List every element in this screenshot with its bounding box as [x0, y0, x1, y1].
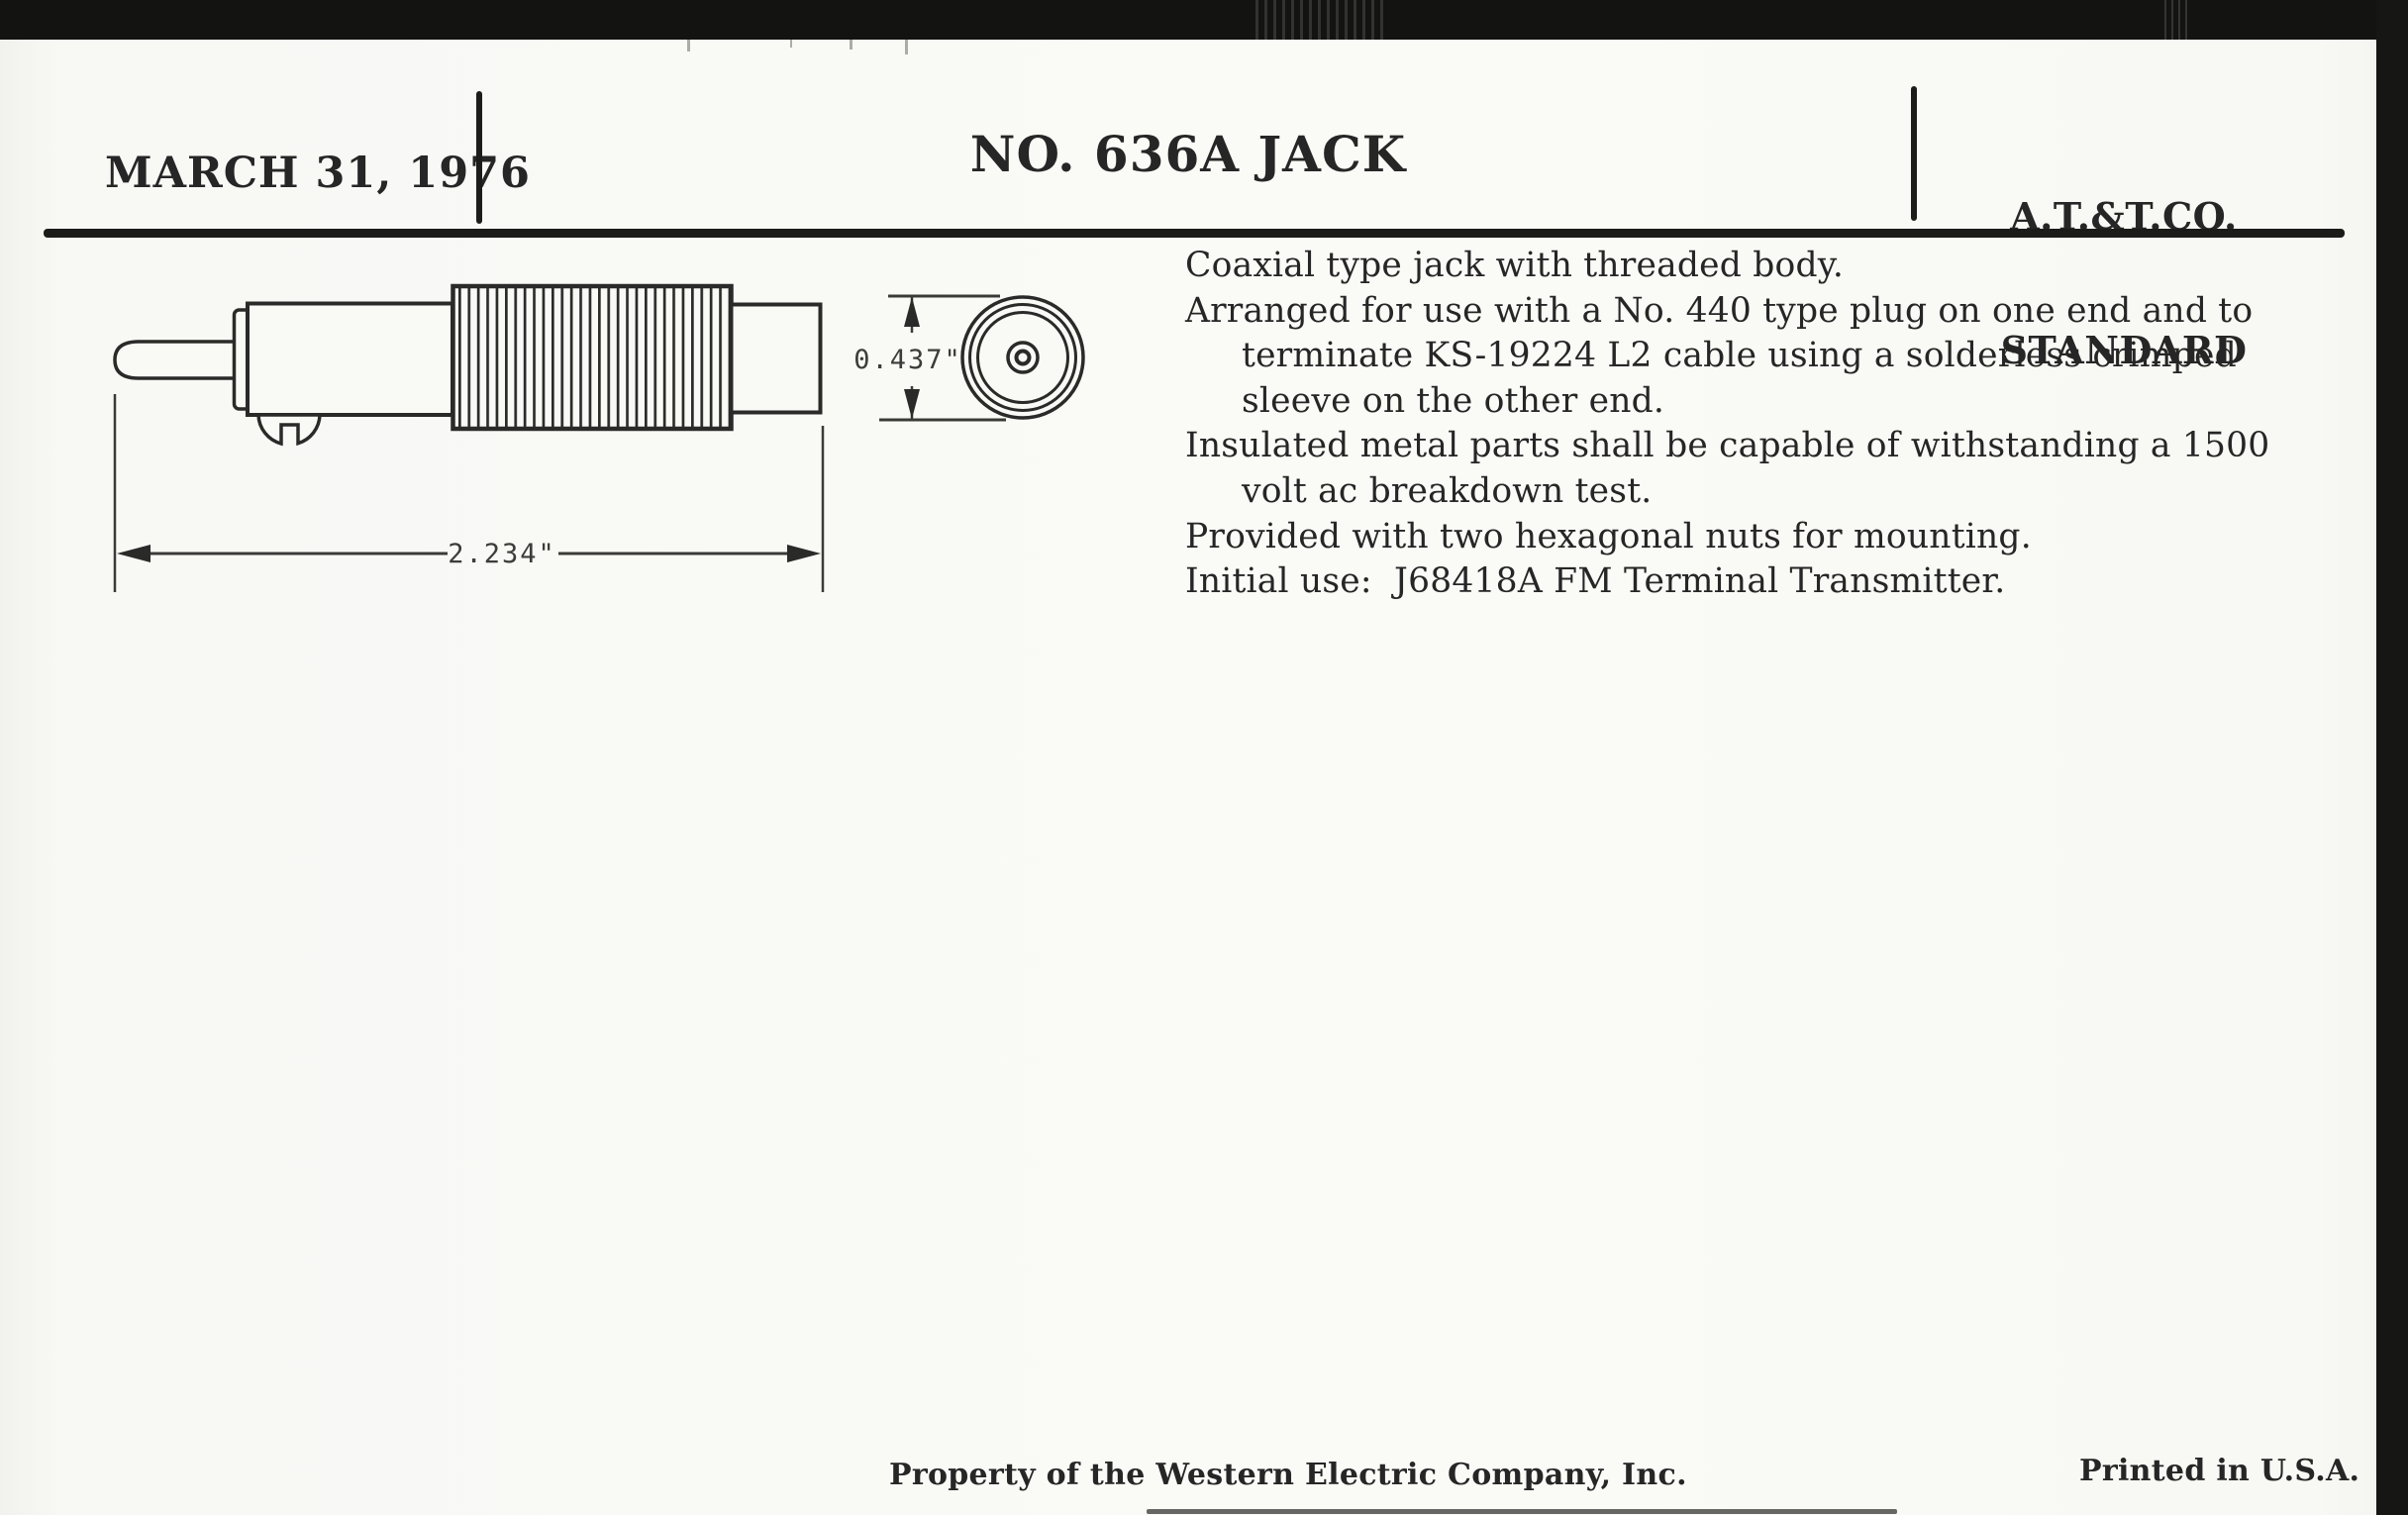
description-line: Provided with two hexagonal nuts for mou…	[1185, 515, 2284, 560]
header-divider-right	[1911, 86, 1917, 221]
scan-speck	[790, 40, 792, 48]
jack-pin	[115, 342, 251, 378]
description-line: Initial use: J68418A FM Terminal Transmi…	[1185, 559, 2284, 605]
dimension-arrow-left	[117, 545, 150, 562]
description-line: terminate KS-19224 L2 cable using a sold…	[1185, 334, 2284, 379]
dimension-arrow-up	[904, 297, 920, 327]
description-line: sleeve on the other end.	[1185, 379, 2284, 425]
scanner-bottom-edge-mark	[1147, 1509, 1897, 1514]
description-line: Arranged for use with a No. 440 type plu…	[1185, 289, 2284, 335]
jack-technical-drawing: 2.234" 0.437"	[89, 257, 1287, 644]
dimension-arrow-down	[904, 389, 920, 419]
dimension-arrow-right	[787, 545, 821, 562]
scan-streak	[2164, 0, 2190, 40]
printed-in-usa-label: Printed in U.S.A.	[2079, 1454, 2359, 1488]
jack-rear-barrel	[732, 305, 821, 413]
description-block: Coaxial type jack with threaded body. Ar…	[1185, 244, 2284, 605]
description-line: Insulated metal parts shall be capable o…	[1185, 424, 2284, 469]
header-divider-left	[476, 91, 482, 224]
end-view-outer-ring	[962, 297, 1083, 418]
jack-end-view	[962, 297, 1083, 418]
header-rule	[44, 229, 2345, 238]
jack-threaded-section	[453, 286, 732, 429]
diameter-dimension-label: 0.437"	[853, 345, 962, 375]
description-line: Coaxial type jack with threaded body.	[1185, 244, 2284, 289]
scanner-right-border	[2376, 0, 2408, 1515]
scan-speck	[850, 40, 853, 50]
scanner-top-border	[0, 0, 2408, 40]
jack-side-view	[115, 286, 821, 444]
scan-speck	[905, 40, 908, 54]
scanned-standard-sheet: MARCH 31, 1976 NO. 636A JACK A.T.&T.CO. …	[0, 0, 2408, 1515]
description-line: volt ac breakdown test.	[1185, 469, 2284, 515]
jack-body	[248, 304, 452, 416]
mounting-lug	[258, 415, 320, 444]
length-dimension-label: 2.234"	[448, 539, 556, 569]
scan-speck	[687, 40, 690, 51]
property-notice: Property of the Western Electric Company…	[889, 1458, 1687, 1492]
scan-streak	[1255, 0, 1386, 40]
